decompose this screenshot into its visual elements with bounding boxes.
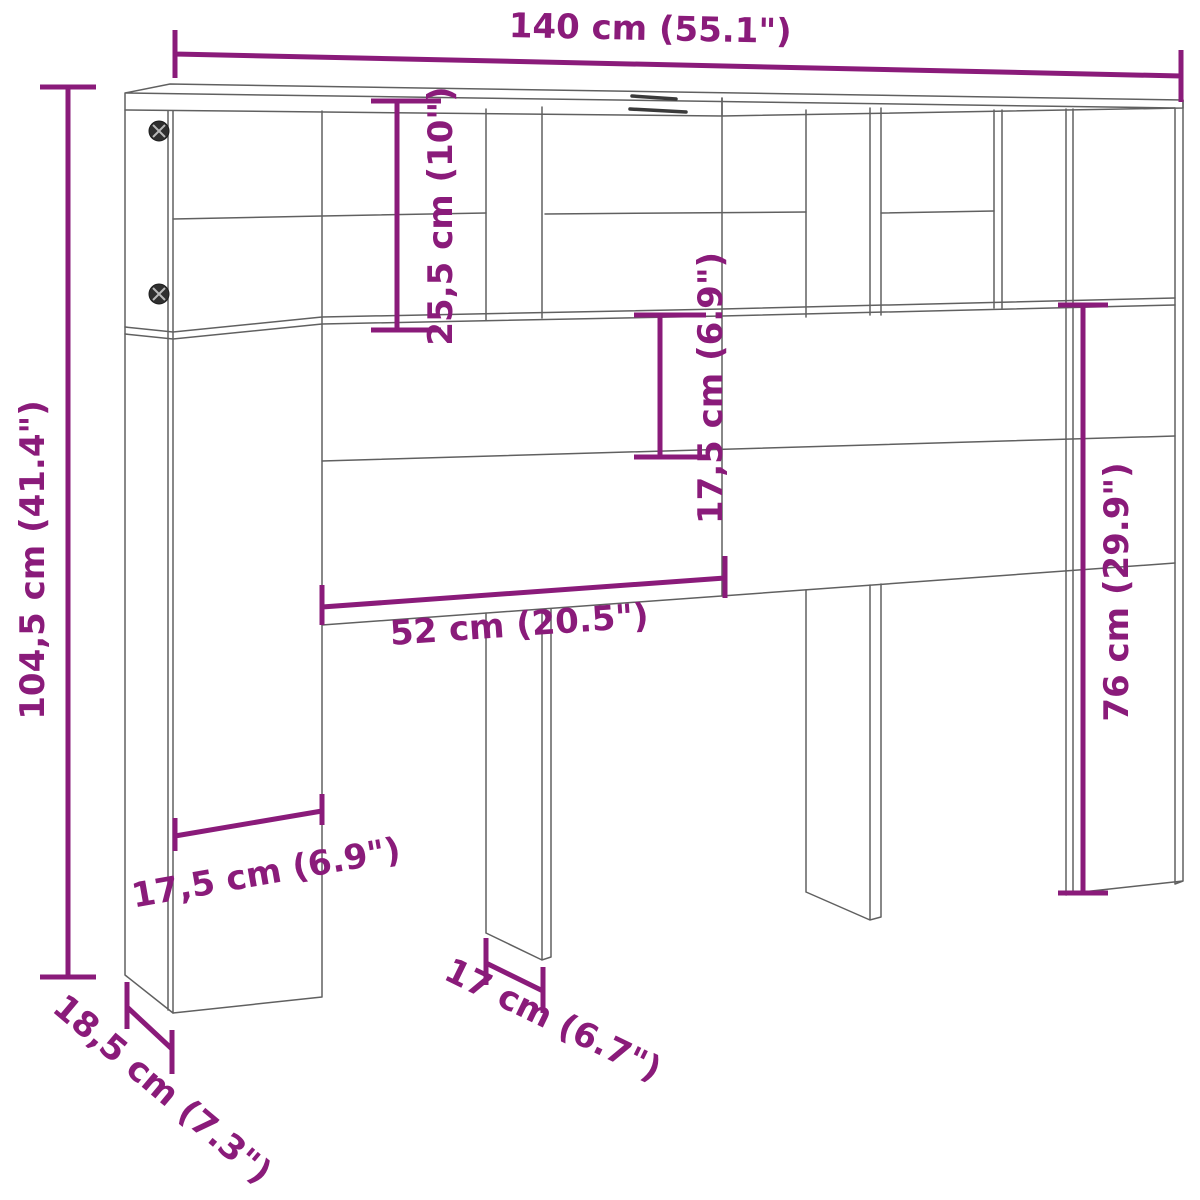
divider-2 bbox=[806, 108, 881, 317]
dim-label-overall-width: 140 cm (55.1") bbox=[508, 6, 792, 52]
screw-icon bbox=[149, 284, 169, 304]
dimension-lines bbox=[40, 30, 1181, 1074]
middle-right-leg bbox=[806, 584, 881, 920]
divider-right-leg bbox=[1066, 109, 1073, 895]
screws bbox=[149, 121, 169, 304]
dim-label-overall-height: 104,5 cm (41.4") bbox=[13, 400, 53, 719]
dimension-labels: 140 cm (55.1") 104,5 cm (41.4") 25,5 cm … bbox=[13, 6, 1137, 1192]
divider-1 bbox=[486, 107, 542, 320]
shelf-band-bottom bbox=[125, 298, 1175, 339]
top-shelves bbox=[173, 211, 994, 219]
middle-left-leg bbox=[486, 609, 551, 960]
divider-3 bbox=[994, 110, 1002, 308]
dim-label-back-panel-width: 52 cm (20.5") bbox=[389, 596, 650, 654]
dim-label-back-rail-height: 17,5 cm (6.9") bbox=[691, 252, 731, 524]
dim-label-side-column-width: 17,5 cm (6.9") bbox=[129, 830, 404, 917]
furniture-dimension-diagram: 140 cm (55.1") 104,5 cm (41.4") 25,5 cm … bbox=[0, 0, 1200, 1200]
dim-label-top-shelf-height: 25,5 cm (10") bbox=[421, 86, 461, 345]
dim-label-side-panel-depth: 18,5 cm (7.3") bbox=[45, 987, 279, 1193]
dim-label-middle-leg-depth: 17 cm (6.7") bbox=[438, 950, 667, 1089]
board-joint-marks bbox=[630, 96, 686, 112]
dim-label-leg-height: 76 cm (29.9") bbox=[1097, 462, 1137, 721]
dim-line-side-column-width bbox=[175, 794, 322, 851]
screw-icon bbox=[149, 121, 169, 141]
diagram-svg: 140 cm (55.1") 104,5 cm (41.4") 25,5 cm … bbox=[0, 0, 1200, 1200]
